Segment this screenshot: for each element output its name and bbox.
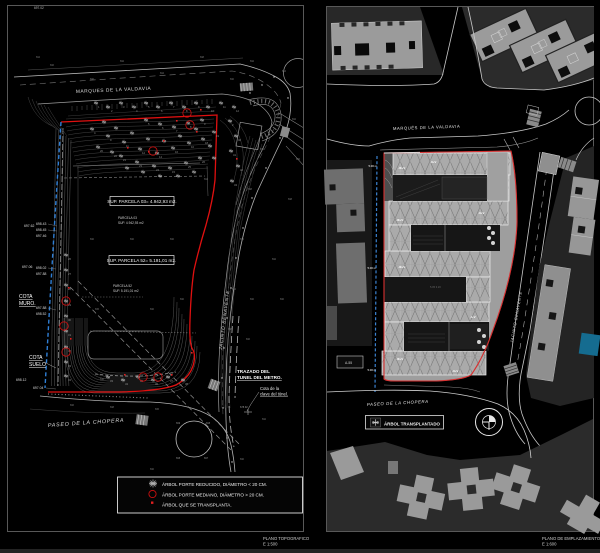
svg-text:697.62: 697.62 [24,224,34,228]
svg-text:19: 19 [216,134,219,138]
svg-text:697.88: 697.88 [36,306,46,310]
svg-text:-II+V: -II+V [478,211,484,215]
svg-text:40: 40 [238,138,241,142]
svg-text:697.88: 697.88 [36,272,46,276]
svg-text:SUP. 5.191,01 m2: SUP. 5.191,01 m2 [113,289,139,293]
svg-text:690: 690 [150,468,155,471]
svg-text:5.00 m: 5.00 m [367,266,376,270]
svg-text:26: 26 [68,257,71,261]
svg-text:23: 23 [139,164,142,168]
svg-text:E 1:500: E 1:500 [263,542,278,547]
svg-text:692: 692 [272,258,277,261]
svg-text:698.52: 698.52 [36,312,46,316]
svg-text:692: 692 [262,418,267,421]
svg-text:696: 696 [50,64,55,67]
svg-text:-I+V: -I+V [470,315,476,319]
svg-text:38: 38 [185,382,188,386]
svg-text:690: 690 [230,78,235,81]
svg-text:694: 694 [204,178,209,181]
svg-text:696: 696 [246,338,251,341]
svg-text:696: 696 [70,404,75,407]
svg-text:PARCELA 52: PARCELA 52 [113,284,132,288]
svg-text:15: 15 [172,170,175,174]
svg-text:SUP. PARCELA 03= 4.942,93 m2.: SUP. PARCELA 03= 4.942,93 m2. [107,199,176,204]
svg-text:41: 41 [233,153,236,157]
svg-text:690: 690 [150,308,155,311]
svg-text:697: 697 [204,457,209,460]
svg-text:690: 690 [180,298,185,301]
svg-text:36: 36 [155,382,158,386]
svg-text:678.92: 678.92 [240,406,248,409]
svg-text:694: 694 [36,56,41,59]
svg-text:690: 690 [100,378,105,381]
svg-text:697.46: 697.46 [36,234,46,238]
svg-text:698.12: 698.12 [16,378,26,382]
svg-text:SUELO: SUELO [29,362,46,368]
svg-text:698: 698 [206,422,211,425]
svg-text:694: 694 [160,72,165,75]
svg-text:698: 698 [228,328,233,331]
svg-text:A-55: A-55 [345,361,352,365]
svg-text:692: 692 [120,60,125,63]
svg-text:MURO.: MURO. [19,301,36,307]
svg-text:690: 690 [280,298,285,301]
svg-text:695: 695 [155,408,160,411]
svg-text:22: 22 [114,154,117,158]
svg-text:698.45: 698.45 [36,228,46,232]
svg-text:SUP. PARCELA 52= 5.191,01 m2.: SUP. PARCELA 52= 5.191,01 m2. [107,258,176,263]
svg-text:690: 690 [240,238,245,241]
svg-text:ÁRBOL QUE SE TRANSPLANTA.: ÁRBOL QUE SE TRANSPLANTA. [162,502,232,508]
svg-text:TRAZADO DEL: TRAZADO DEL [237,369,270,374]
svg-text:clave del túnel.: clave del túnel. [260,392,288,397]
svg-text:PARCELA 03: PARCELA 03 [118,216,137,220]
svg-text:34: 34 [125,382,128,386]
svg-text:COTA: COTA [29,355,43,361]
svg-text:698: 698 [248,188,253,191]
svg-text:33: 33 [110,379,113,383]
svg-text:E 1:600: E 1:600 [542,542,557,547]
svg-text:14: 14 [159,155,162,159]
svg-text:692: 692 [250,60,255,63]
svg-text:698.43: 698.43 [36,222,46,226]
svg-text:-III+V: -III+V [396,218,403,222]
svg-text:5.05 3.20: 5.05 3.20 [430,285,441,289]
svg-text:SUP. 4.942,93 m2: SUP. 4.942,93 m2 [118,221,144,225]
svg-text:24: 24 [156,168,159,172]
svg-text:699: 699 [176,422,181,425]
svg-text:ÁRBOL TRANSPLANTADO: ÁRBOL TRANSPLANTADO [384,421,441,426]
svg-text:37: 37 [170,379,173,383]
svg-text:5.00 m: 5.00 m [368,164,377,168]
svg-text:30: 30 [68,318,71,322]
svg-text:-III+V: -III+V [398,166,405,170]
svg-text:10: 10 [211,109,214,113]
svg-text:PLANO TOPOGRAFICO: PLANO TOPOGRAFICO [263,536,310,541]
svg-text:690: 690 [170,238,175,241]
svg-text:697.02: 697.02 [34,6,44,10]
svg-text:690: 690 [250,298,255,301]
svg-text:692: 692 [232,288,237,291]
svg-text:-III+V: -III+V [396,357,403,361]
svg-text:20: 20 [100,149,103,153]
svg-text:34: 34 [68,378,71,382]
svg-text:698: 698 [110,406,115,409]
svg-text:690: 690 [240,458,245,461]
svg-text:-II+V: -II+V [430,160,436,164]
svg-text:698.02: 698.02 [36,266,46,270]
svg-text:10: 10 [191,145,194,149]
svg-text:ÁRBOL PORTE REDUCIDO, DIÁMETRO: ÁRBOL PORTE REDUCIDO, DIÁMETRO < 20 CM. [162,481,267,487]
svg-text:43: 43 [234,183,237,187]
svg-text:16: 16 [175,150,178,154]
svg-text:698: 698 [200,56,205,59]
svg-text:696: 696 [296,158,301,161]
svg-text:33: 33 [68,364,71,368]
svg-text:42: 42 [240,168,243,172]
svg-text:698: 698 [288,198,293,201]
svg-text:697.06: 697.06 [22,265,32,269]
svg-text:TUNEL DEL METRO.: TUNEL DEL METRO. [237,375,282,380]
svg-text:-III+V: -III+V [398,265,405,269]
svg-text:698: 698 [176,457,181,460]
svg-text:18: 18 [205,141,208,145]
svg-text:690: 690 [90,238,95,241]
svg-text:12: 12 [236,109,239,113]
svg-text:27: 27 [68,272,71,276]
svg-text:690: 690 [260,148,265,151]
svg-text:21: 21 [123,158,126,162]
svg-text:694: 694 [282,70,287,73]
svg-text:5.00 m: 5.00 m [367,368,376,372]
svg-text:697.04: 697.04 [33,386,43,390]
svg-text:690: 690 [90,78,95,81]
svg-text:12: 12 [142,151,145,155]
svg-text:PLANO DE EMPLAZAMIENTO: PLANO DE EMPLAZAMIENTO [542,536,600,541]
svg-text:COTA: COTA [19,294,33,300]
svg-text:690: 690 [130,238,135,241]
svg-text:692: 692 [292,118,297,121]
svg-text:Cota de la: Cota de la [260,386,280,391]
svg-text:31: 31 [68,333,71,337]
svg-text:-II+V: -II+V [452,369,458,373]
svg-text:ÁRBOL PORTE MEDIANO, DIÁMETRO: ÁRBOL PORTE MEDIANO, DIÁMETRO > 20 CM. [162,492,264,498]
svg-text:26: 26 [202,160,205,164]
svg-text:25: 25 [188,165,191,169]
svg-text:695: 695 [95,308,100,311]
